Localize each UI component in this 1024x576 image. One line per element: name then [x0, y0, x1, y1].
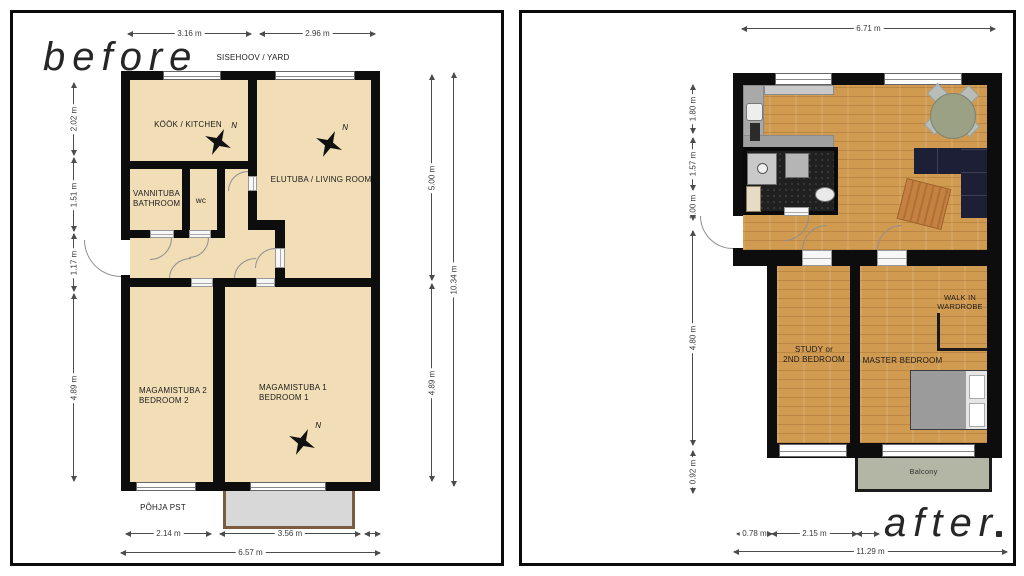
floorplan-before: KÖÖK / KITCHEN ELUTUBA / LIVING ROOM VAN…	[121, 71, 380, 491]
door-threshold	[150, 230, 174, 238]
dim-left-2: 1.51 m	[73, 158, 74, 231]
dim-bottom-total: 6.57 m	[121, 552, 380, 553]
door-threshold	[191, 278, 213, 287]
balcony-label: Balcony	[855, 467, 992, 476]
wall-segment	[733, 250, 987, 266]
pillow	[969, 403, 985, 427]
bed-mattress	[911, 371, 967, 429]
dim-top: 6.71 m	[742, 28, 995, 29]
panel-before: before SISEHOOV / YARD 3.16 m 2.96 m 2.0…	[10, 10, 504, 566]
dim-bottom-2: 3.56 m	[220, 533, 360, 534]
dim-right-2: 4.89 m	[431, 284, 432, 481]
dim-bottom-2: 2.15 m	[772, 533, 857, 534]
wall-segment	[213, 287, 225, 482]
door-threshold	[256, 278, 275, 287]
dim-left-5: 0.92 m	[692, 451, 693, 493]
wall-segment	[987, 73, 1002, 458]
room-label-living: ELUTUBA / LIVING ROOM	[261, 175, 381, 185]
window	[163, 71, 221, 80]
wall-segment	[182, 169, 190, 238]
dim-bottom-1: 0.78 m	[737, 533, 772, 534]
room-label-master: MASTER BEDROOM	[855, 356, 950, 366]
wall-segment	[248, 71, 257, 230]
wall-segment	[121, 161, 257, 169]
window	[779, 444, 847, 457]
door-arc	[84, 240, 121, 277]
dim-left-1: 2.02 m	[73, 83, 74, 155]
after-title: after	[884, 503, 999, 543]
compass-star-icon	[203, 127, 233, 157]
entrance-opening	[733, 216, 743, 248]
window	[250, 482, 326, 491]
door-threshold	[275, 248, 285, 268]
wall-segment	[217, 169, 225, 238]
title-dot	[996, 531, 1002, 537]
door-threshold	[877, 250, 907, 266]
dim-left-2: 1.57 m	[692, 138, 693, 190]
room-label-bedroom1: MAGAMISTUBA 1 BEDROOM 1	[259, 383, 327, 403]
dim-bottom-total: 11.29 m	[734, 551, 1007, 552]
window	[884, 73, 962, 85]
yard-label: SISEHOOV / YARD	[153, 53, 353, 63]
stove	[750, 123, 760, 141]
room-label-study: STUDY or 2ND BEDROOM	[774, 345, 854, 365]
compass-icon: N	[287, 421, 321, 461]
dim-top-2: 2.96 m	[260, 33, 375, 34]
room-label-wardrobe: WALK IN WARDROBE	[931, 293, 989, 312]
wall-segment	[733, 73, 743, 218]
street-label: PÕHJA PST	[103, 503, 223, 513]
compass-icon: N	[203, 121, 237, 161]
window	[136, 482, 196, 491]
dim-left-3: 1.17 m	[73, 234, 74, 291]
bathroom-faucet	[757, 163, 768, 174]
dim-bottom-stub	[365, 533, 380, 534]
sofa	[961, 148, 987, 218]
wall-segment	[121, 278, 380, 287]
dim-left-1: 1.80 m	[692, 85, 693, 133]
door-threshold	[802, 250, 832, 266]
wardrobe-wall	[937, 348, 987, 351]
dim-top-1: 3.16 m	[128, 33, 251, 34]
entrance-opening	[121, 240, 130, 275]
window	[775, 73, 832, 85]
compass-icon: N	[314, 123, 348, 163]
dim-bottom-stub	[857, 533, 879, 534]
wardrobe-wall	[937, 313, 940, 351]
dim-right-total: 10.34 m	[453, 73, 454, 486]
dim-left-4: 4.89 m	[73, 294, 74, 481]
toilet	[815, 187, 835, 202]
panel-after: after 6.71 m 1.80 m 1.57 m 1.00 m 4.80 m…	[519, 10, 1016, 566]
door-threshold	[248, 176, 257, 191]
dim-right-1: 5.00 m	[431, 75, 432, 280]
kitchen-sink	[746, 103, 763, 121]
floorplan-after: Balcony	[733, 73, 1002, 493]
dining-table	[930, 93, 976, 139]
door-threshold	[784, 207, 809, 216]
dim-bottom-1: 2.14 m	[126, 533, 211, 534]
bathroom-cabinet	[746, 186, 761, 212]
window	[275, 71, 355, 80]
dim-left-3: 1.00 m	[692, 193, 693, 220]
washing-machine	[785, 153, 809, 178]
door-threshold	[189, 230, 211, 238]
compass-star-icon	[287, 427, 317, 457]
balcony-before	[223, 487, 355, 529]
door-arc	[700, 216, 733, 249]
bed	[910, 370, 987, 430]
room-label-bedroom2: MAGAMISTUBA 2 BEDROOM 2	[139, 386, 207, 406]
window	[882, 444, 975, 457]
room-label-bathroom: VANNITUBA BATHROOM	[133, 189, 180, 209]
kitchen-counter	[764, 85, 834, 95]
pillow	[969, 375, 985, 399]
dim-left-4: 4.80 m	[692, 231, 693, 445]
compass-star-icon	[314, 129, 344, 159]
room-label-wc: wc	[191, 196, 211, 206]
